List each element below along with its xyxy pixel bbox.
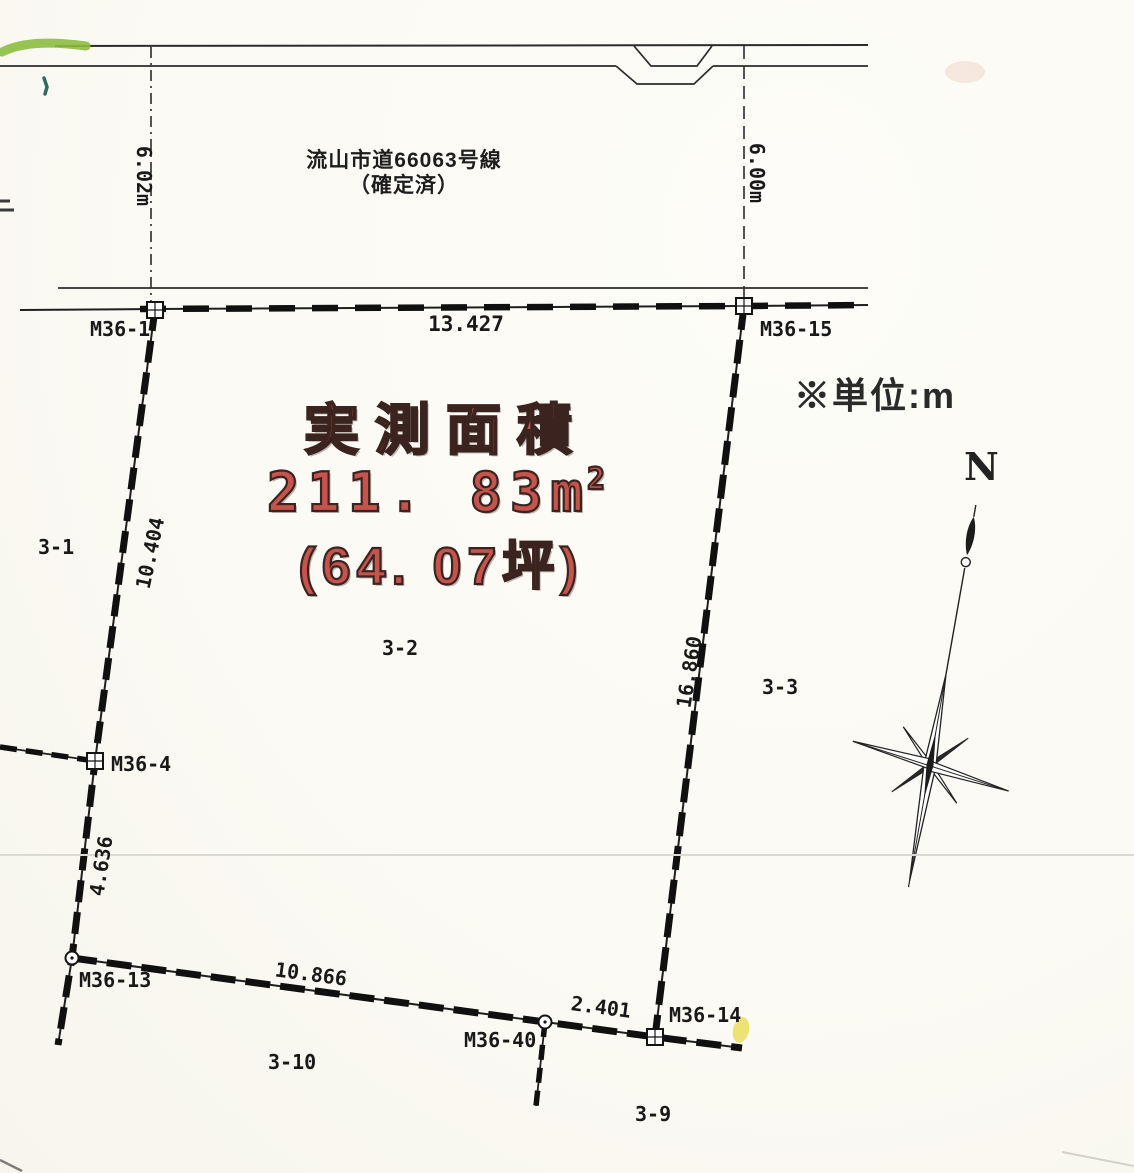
survey-sheet: 流山市道66063号線 （確定済） 6.02m 6.00m 13.427 10.…: [0, 0, 1134, 1173]
marker-circle-M36-13: [66, 952, 79, 965]
marker-label-m36-15: M36-15: [760, 317, 832, 341]
road-name-line2: （確定済）: [306, 173, 501, 198]
unit-note: ※単位:m: [794, 367, 956, 419]
area-title: 実測面積: [267, 400, 625, 460]
marker-label-m36-13: M36-13: [79, 968, 151, 992]
marker-square-M36-14: [647, 1029, 663, 1045]
highlighter-green: [2, 43, 86, 52]
dim-top: 13.427: [428, 312, 504, 336]
marker-square-M36-1: [147, 302, 163, 318]
area-value-sup: 2: [587, 462, 605, 497]
marker-label-m36-14: M36-14: [669, 1003, 741, 1027]
area-value-sqm: 211. 83m2: [267, 460, 609, 535]
gutter-crossing: [616, 66, 713, 84]
compass-knot: [961, 557, 971, 567]
marker-label-m36-40: M36-40: [464, 1028, 536, 1052]
gutter-crossing: [634, 46, 712, 66]
road-name: 流山市道66063号線 （確定済）: [306, 148, 501, 198]
marker-circle-M36-40: [539, 1016, 552, 1029]
mark-teal: [44, 78, 47, 94]
dim-road-width-right: 6.00m: [745, 143, 769, 203]
mark-corner-br: [1062, 1152, 1134, 1166]
compass-rose: [830, 491, 1057, 901]
parcel-label-3-10: 3-10: [268, 1050, 316, 1074]
dim-road-width-left: 6.02m: [132, 146, 156, 206]
compass-spear: [963, 516, 978, 556]
smudge-pink: [945, 61, 985, 83]
area-value-tsubo: (64. 07坪): [267, 535, 615, 599]
mark-left-edge: [0, 201, 14, 210]
marker-label-m36-1: M36-1: [90, 317, 150, 341]
area-measured: 実測面積 211. 83m2 (64. 07坪): [267, 400, 609, 599]
road-name-line1: 流山市道66063号線: [306, 148, 501, 173]
marker-square-M36-4: [87, 753, 103, 769]
mark-corner-bl: [0, 1160, 22, 1171]
parcel-label-3-2: 3-2: [382, 636, 418, 660]
parcel-label-3-9: 3-9: [635, 1102, 671, 1126]
compass-star: [831, 661, 1027, 896]
north-label: N: [964, 444, 999, 489]
parcel-label-3-1: 3-1: [38, 535, 74, 559]
marker-square-M36-15: [736, 298, 752, 314]
scan-artifacts: [0, 43, 1134, 1171]
marker-label-m36-4: M36-4: [111, 752, 171, 776]
parcel-label-3-3: 3-3: [762, 675, 798, 699]
